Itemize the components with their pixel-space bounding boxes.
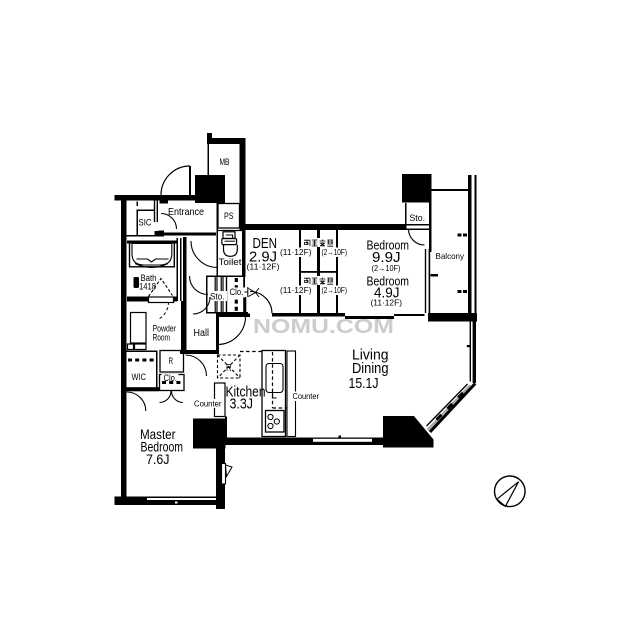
- svg-text:15.1J: 15.1J: [349, 376, 379, 392]
- svg-text:3.3J: 3.3J: [230, 397, 254, 413]
- svg-text:(2→10F): (2→10F): [322, 247, 348, 257]
- svg-text:(11·12F): (11·12F): [280, 247, 312, 257]
- svg-text:Dining: Dining: [352, 361, 389, 377]
- svg-text:Sto.: Sto.: [410, 213, 426, 223]
- svg-text:WIC: WIC: [132, 372, 147, 382]
- svg-text:Counter: Counter: [293, 391, 320, 401]
- svg-text:(11·12F): (11·12F): [371, 298, 403, 308]
- svg-text:MB: MB: [220, 157, 230, 168]
- svg-text:NOMU.COM: NOMU.COM: [253, 316, 394, 338]
- svg-text:PS: PS: [224, 211, 234, 222]
- svg-text:Sto.: Sto.: [210, 292, 225, 302]
- svg-text:(11·12F): (11·12F): [247, 262, 280, 272]
- svg-text:(11·12F): (11·12F): [280, 285, 312, 295]
- svg-text:Toilet: Toilet: [219, 257, 242, 268]
- svg-text:Balcony: Balcony: [436, 251, 465, 261]
- svg-text:Room: Room: [153, 333, 171, 343]
- svg-text:(2→10F): (2→10F): [322, 285, 348, 295]
- svg-text:SIC: SIC: [139, 218, 152, 229]
- svg-text:Clo.: Clo.: [230, 287, 244, 297]
- svg-text:Counter: Counter: [194, 399, 222, 409]
- svg-text:R: R: [169, 356, 174, 366]
- svg-text:R: R: [226, 363, 232, 374]
- svg-text:7.6J: 7.6J: [146, 451, 170, 467]
- svg-text:Hall: Hall: [194, 328, 210, 339]
- svg-text:1418: 1418: [139, 282, 156, 292]
- svg-text:Entrance: Entrance: [168, 206, 204, 218]
- svg-text:(2→10F): (2→10F): [372, 263, 401, 273]
